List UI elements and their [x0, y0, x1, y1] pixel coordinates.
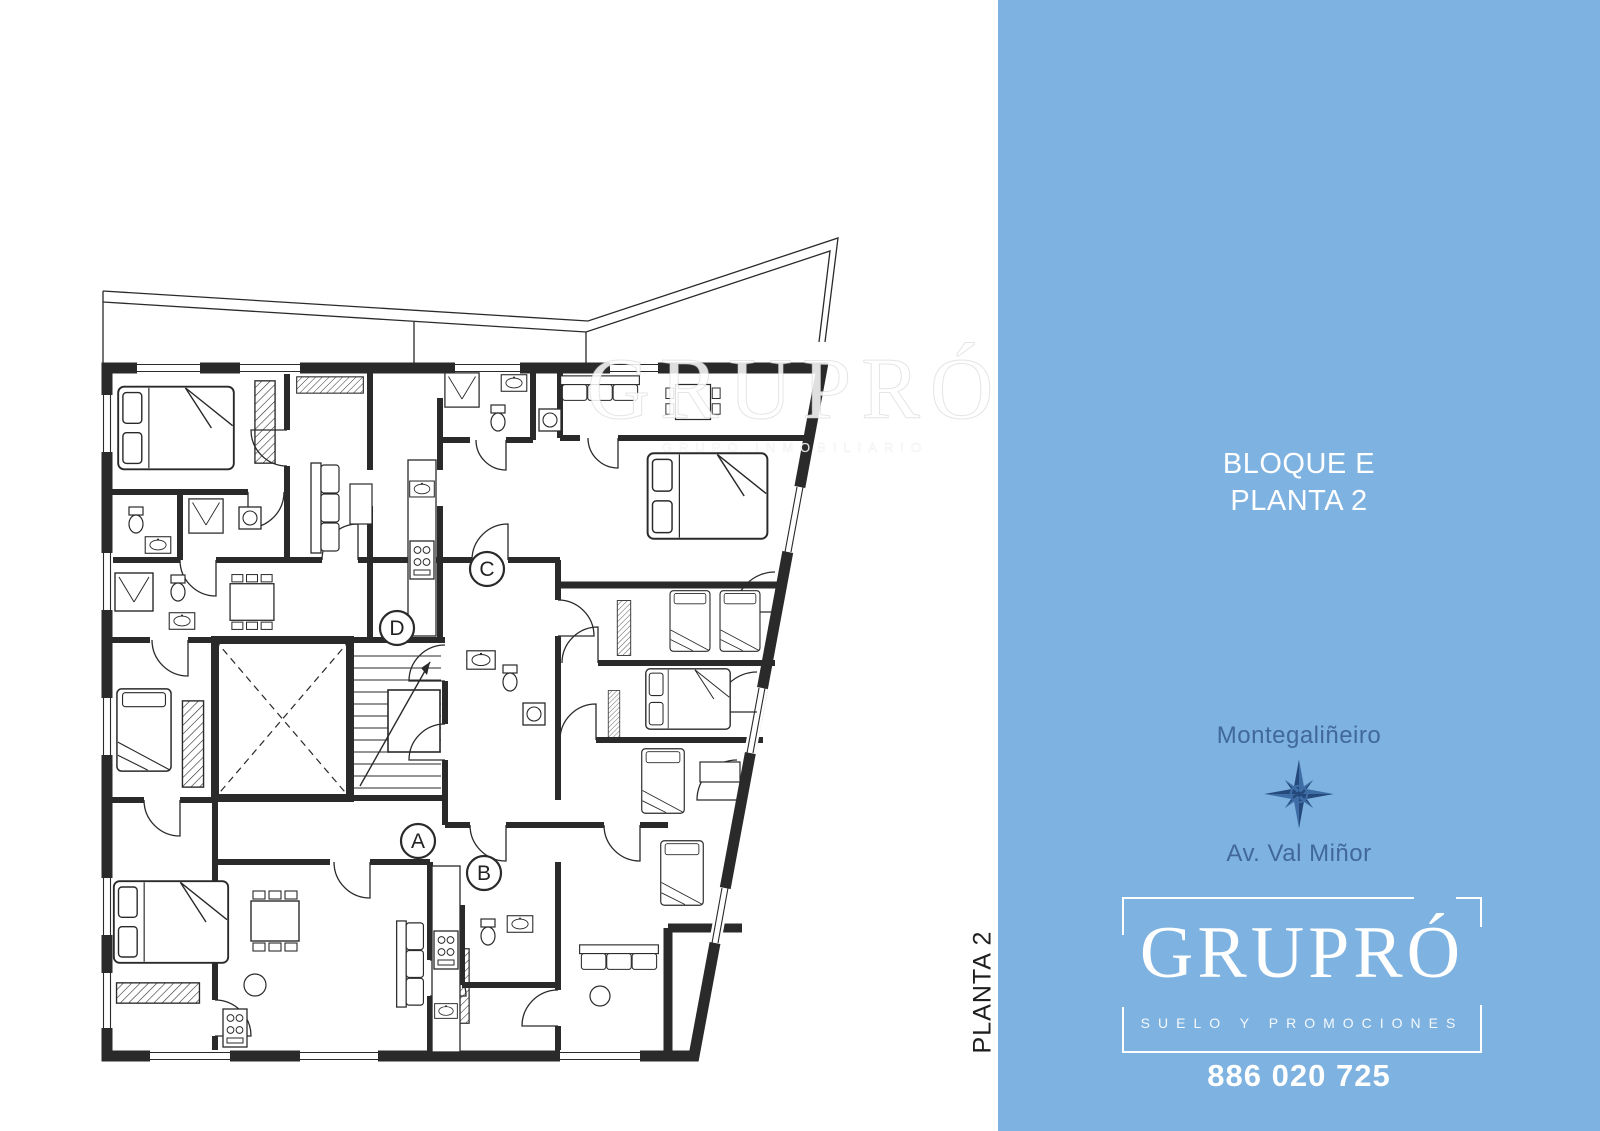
- sink-icon: [435, 1004, 458, 1019]
- toilet-icon: [491, 405, 505, 431]
- location-south-label: Av. Val Miñor: [998, 840, 1600, 868]
- svg-text:D: D: [389, 617, 404, 640]
- info-panel: BLOQUE E PLANTA 2 Montegaliñeiro Av. Val…: [998, 0, 1600, 1131]
- svg-text:A: A: [411, 830, 425, 853]
- bed-icon: [720, 591, 760, 652]
- washer-icon: [539, 409, 561, 431]
- shower-icon: [189, 499, 223, 533]
- sofa-icon: [311, 463, 339, 553]
- washer-icon: [239, 507, 261, 529]
- stove-icon: [434, 931, 458, 969]
- washer-icon: [523, 703, 545, 725]
- brochure-page: { "plan": { "side_label": "PLANTA 2", "w…: [0, 0, 1600, 1131]
- sink-icon: [507, 916, 533, 933]
- wardrobe-icon: [297, 377, 364, 393]
- unit-label-b: B: [467, 856, 501, 890]
- svg-text:B: B: [477, 862, 491, 885]
- bed-icon: [118, 387, 234, 470]
- wardrobe-icon: [617, 601, 630, 656]
- wardrobe-icon: [182, 701, 203, 787]
- coffee-table-icon: [350, 484, 372, 524]
- toilet-icon: [171, 575, 185, 601]
- sink-icon: [169, 613, 195, 630]
- side-table-icon: [244, 974, 266, 996]
- brand-tagline: SUELO Y PROMOCIONES: [1124, 1015, 1480, 1031]
- side-floor-label: PLANTA 2: [969, 931, 998, 1054]
- sofa-icon: [397, 921, 424, 1007]
- compass-icon: [1260, 755, 1338, 833]
- block-label: BLOQUE E: [998, 446, 1600, 483]
- unit-label-d: D: [380, 611, 414, 645]
- sink-icon: [467, 651, 495, 669]
- desk-icon: [700, 762, 740, 782]
- wardrobe-icon: [117, 983, 200, 1003]
- logo-box: GRUPRÓ SUELO Y PROMOCIONES: [1122, 897, 1482, 1053]
- floor-label: PLANTA 2: [998, 483, 1600, 520]
- shower-icon: [115, 573, 153, 611]
- bed-icon: [117, 689, 171, 771]
- logo-box-border-gap-right: [1480, 927, 1482, 1005]
- bed-icon: [670, 591, 710, 652]
- unit-label-a: A: [401, 824, 435, 858]
- bed-icon: [114, 881, 228, 963]
- stove-icon: [223, 1009, 247, 1047]
- panel-title: BLOQUE E PLANTA 2: [998, 446, 1600, 520]
- unit-label-c: C: [470, 552, 504, 586]
- wardrobe-icon: [255, 381, 275, 463]
- core-patio: [215, 640, 350, 798]
- location-north-label: Montegaliñeiro: [998, 722, 1600, 750]
- sofa-icon: [580, 945, 659, 970]
- shower-icon: [445, 373, 479, 407]
- brand-logo: GRUPRÓ: [1124, 913, 1480, 994]
- toilet-icon: [481, 919, 495, 945]
- watermark-title: GRUPRÓ: [587, 341, 998, 438]
- wardrobe-icon: [608, 690, 620, 737]
- logo-box-border-gap-top: [1414, 897, 1456, 899]
- bed-icon: [642, 749, 685, 814]
- watermark-subtitle: GRUPO INMOBILIARIO: [662, 440, 928, 455]
- toilet-icon: [503, 665, 517, 691]
- floor-plan-svg: A B C D GRUPRÓ GRUPO INMOBILIARIO: [0, 0, 998, 1131]
- watermark: GRUPRÓ GRUPO INMOBILIARIO: [587, 341, 998, 455]
- bed-icon: [661, 841, 704, 906]
- stairs-icon: [354, 656, 441, 788]
- stove-icon: [410, 541, 434, 579]
- side-table-icon: [590, 986, 610, 1006]
- sink-icon: [501, 375, 527, 392]
- sink-icon: [145, 537, 171, 554]
- bed-icon: [646, 669, 730, 729]
- svg-text:C: C: [479, 558, 494, 581]
- dining-table-icon: [230, 575, 274, 630]
- floor-plan-area: A B C D GRUPRÓ GRUPO INMOBILIARIO PLANTA…: [0, 0, 998, 1131]
- toilet-icon: [129, 507, 143, 533]
- phone-number: 886 020 725: [998, 1058, 1600, 1094]
- bed-icon: [648, 453, 768, 539]
- dining-table-icon: [251, 891, 299, 951]
- sink-icon: [410, 481, 435, 497]
